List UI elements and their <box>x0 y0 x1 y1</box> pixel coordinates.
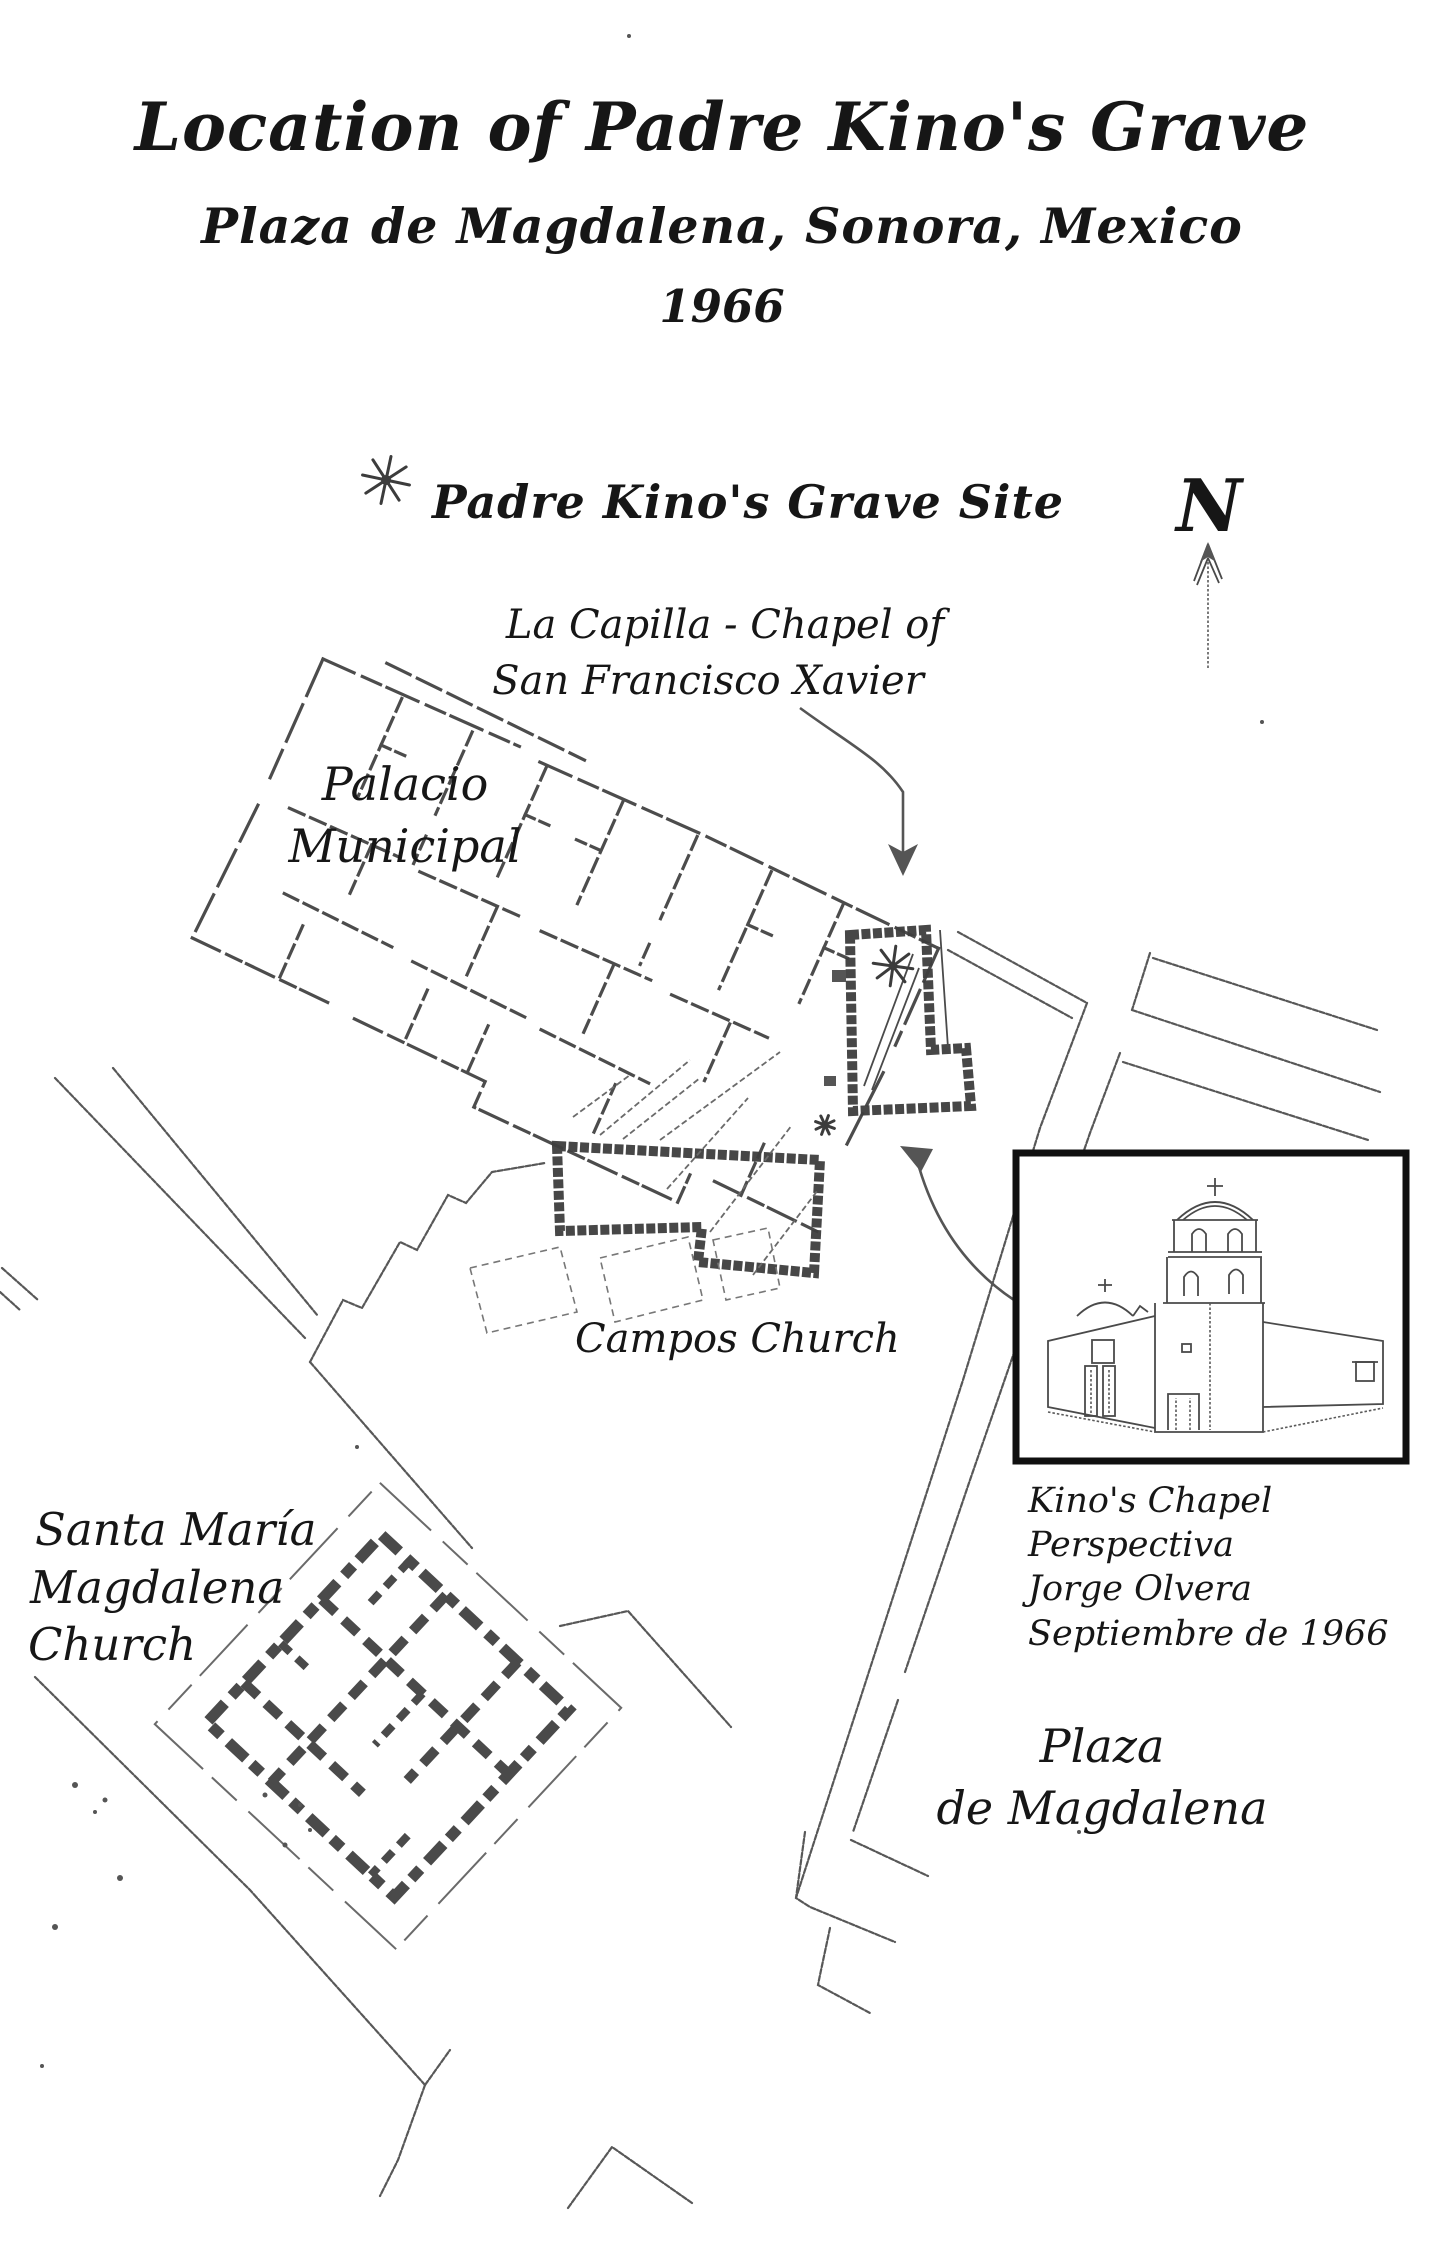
palacio-municipal-outline <box>174 636 957 1259</box>
label-plaza-line2: de Magdalena <box>936 1781 1267 1835</box>
label-palacio-line1: Palacio <box>321 757 489 811</box>
label-santa-maria-line1: Santa María <box>35 1503 317 1556</box>
small-star-marker-icon <box>812 1112 838 1138</box>
label-santa-maria-line3: Church <box>28 1618 196 1671</box>
inset-to-chapel-arrow <box>900 1146 1014 1300</box>
inset-caption-line2: Perspectiva <box>1027 1525 1234 1565</box>
page-title: Location of Padre Kino's Grave <box>133 88 1310 166</box>
kino-chapel-inset <box>1016 1153 1406 1461</box>
scanned-map-page: Location of Padre Kino's Grave Plaza de … <box>0 0 1441 2242</box>
label-campos-church: Campos Church <box>575 1316 900 1362</box>
legend-label: Padre Kino's Grave Site <box>430 475 1064 529</box>
inset-caption-line3: Jorge Olvera <box>1022 1569 1252 1609</box>
label-plaza-line1: Plaza <box>1039 1719 1165 1773</box>
inset-caption-line1: Kino's Chapel <box>1027 1481 1272 1521</box>
page-year: 1966 <box>659 280 784 333</box>
north-label: N <box>1174 463 1245 548</box>
label-capilla-line1: La Capilla - Chapel of <box>505 602 950 648</box>
label-palacio-line2: Municipal <box>287 819 521 873</box>
capilla-label-arrow <box>800 708 918 876</box>
map-canvas: Location of Padre Kino's Grave Plaza de … <box>0 0 1441 2242</box>
grave-site-star-icon <box>358 452 415 509</box>
campos-church-outline <box>470 1052 820 1333</box>
inset-caption-line4: Septiembre de 1966 <box>1028 1614 1389 1654</box>
north-arrow-icon <box>1194 542 1222 668</box>
page-subtitle: Plaza de Magdalena, Sonora, Mexico <box>199 197 1243 255</box>
label-capilla-line2: San Francisco Xavier <box>492 658 927 704</box>
label-santa-maria-line2: Magdalena <box>29 1561 284 1614</box>
